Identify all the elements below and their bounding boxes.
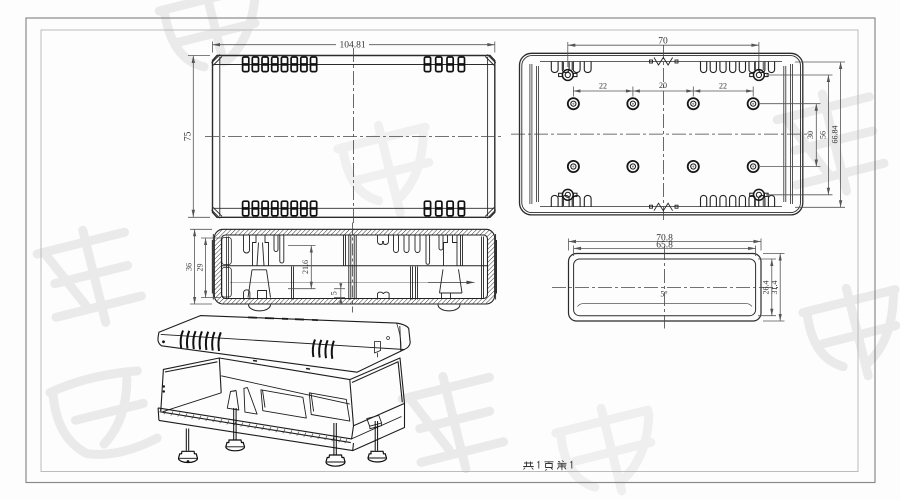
svg-text:66.84: 66.84: [831, 126, 840, 144]
svg-text:30: 30: [806, 131, 815, 139]
svg-text:36: 36: [184, 263, 193, 271]
svg-text:5°: 5°: [660, 290, 667, 299]
svg-text:21.6: 21.6: [301, 260, 310, 274]
svg-text:31.4: 31.4: [770, 281, 779, 295]
svg-text:5: 5: [330, 291, 339, 295]
svg-text:75: 75: [184, 131, 194, 141]
svg-text:22: 22: [719, 82, 727, 91]
svg-text:56: 56: [818, 131, 827, 139]
svg-text:70: 70: [658, 37, 668, 47]
svg-text:104.81: 104.81: [340, 41, 366, 51]
svg-text:29: 29: [195, 264, 204, 272]
svg-text:65.8: 65.8: [656, 241, 673, 251]
svg-text:20: 20: [659, 81, 667, 90]
svg-text:22: 22: [599, 82, 607, 91]
